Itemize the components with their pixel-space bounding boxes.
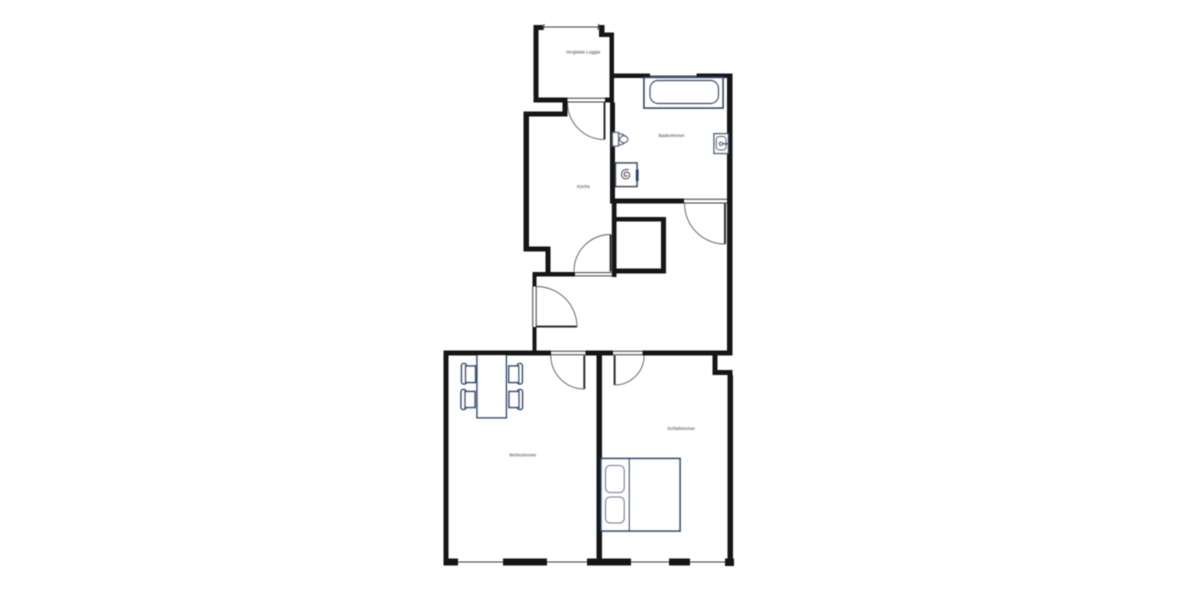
svg-text:Schlafzimmer: Schlafzimmer <box>667 426 695 431</box>
svg-text:Wohnzimmer: Wohnzimmer <box>509 453 536 458</box>
svg-text:Küche: Küche <box>577 184 590 189</box>
svg-text:Badezimmer: Badezimmer <box>659 133 685 138</box>
svg-text:Verglaste Loggia: Verglaste Loggia <box>566 50 601 55</box>
